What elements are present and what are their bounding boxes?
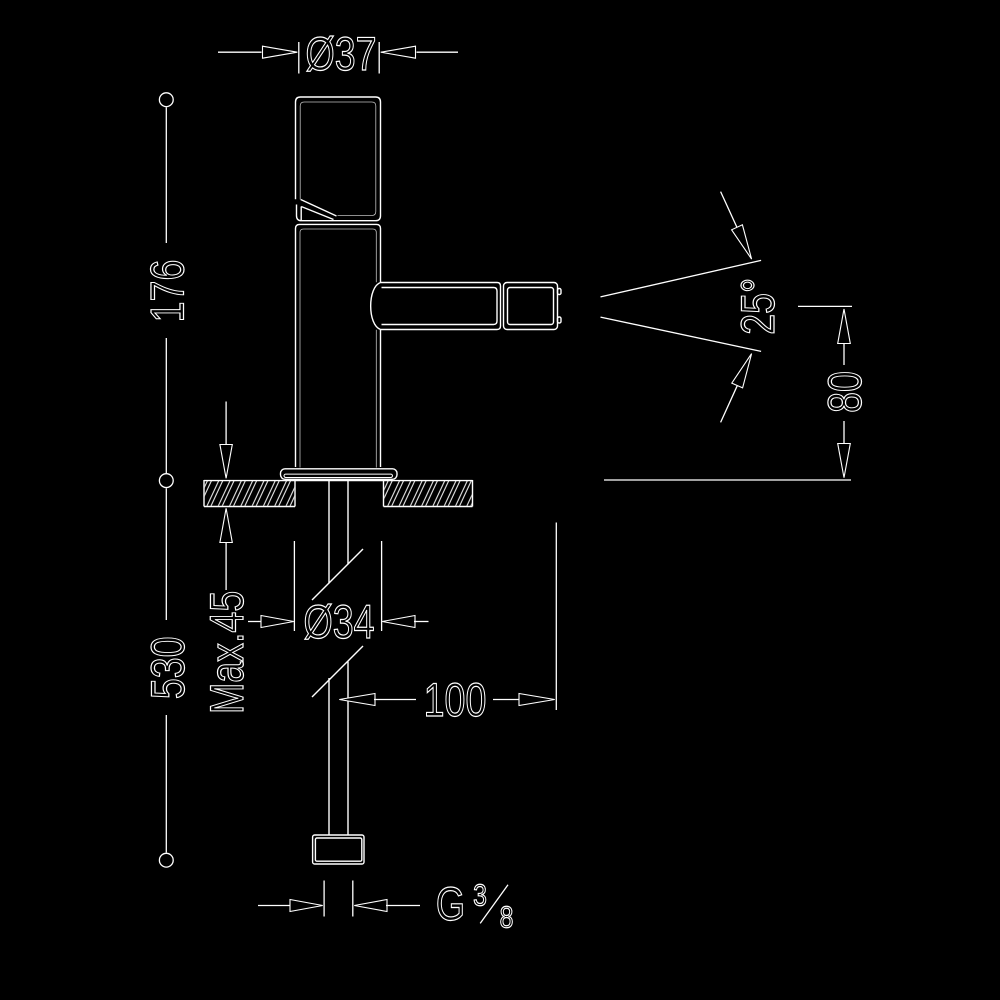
svg-text:80: 80 <box>819 371 872 413</box>
svg-text:8: 8 <box>500 900 514 934</box>
svg-text:176: 176 <box>142 260 195 323</box>
svg-text:100: 100 <box>424 674 487 727</box>
svg-text:G: G <box>436 878 465 931</box>
svg-text:Ø34: Ø34 <box>303 596 374 649</box>
svg-text:25°: 25° <box>732 278 785 335</box>
svg-text:530: 530 <box>142 636 195 699</box>
svg-text:Ø37: Ø37 <box>305 28 376 81</box>
svg-text:Max.45: Max.45 <box>201 591 254 714</box>
svg-text:3: 3 <box>473 878 487 912</box>
